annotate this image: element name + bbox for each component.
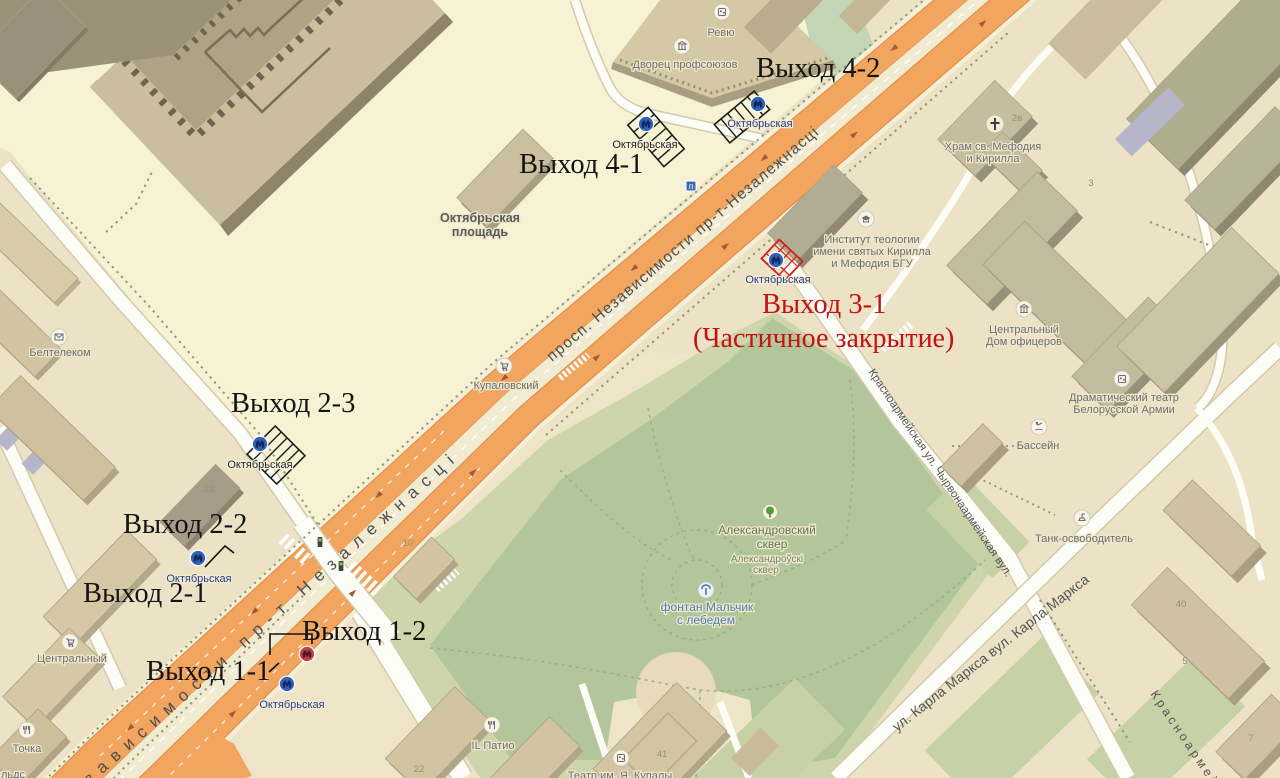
- svg-text:2в: 2в: [1012, 113, 1022, 124]
- svg-text:и Кирилла: и Кирилла: [967, 153, 1021, 165]
- svg-text:Драматический театр: Драматический театр: [1069, 392, 1179, 404]
- svg-text:Храм св. Мефодия: Храм св. Мефодия: [945, 141, 1042, 153]
- svg-text:Октябрьская: Октябрьская: [227, 459, 292, 471]
- svg-text:Ревю: Ревю: [707, 27, 734, 39]
- svg-text:Выход 2-3: Выход 2-3: [231, 388, 355, 419]
- svg-text:Октябрьская: Октябрьская: [440, 211, 520, 225]
- svg-text:Александровский: Александровский: [718, 523, 816, 537]
- svg-text:с лебедем: с лебедем: [677, 613, 735, 627]
- svg-text:льдс: льдс: [1, 769, 26, 778]
- svg-text:IL Патио: IL Патио: [472, 740, 515, 752]
- svg-text:Выход 4-2: Выход 4-2: [756, 53, 880, 84]
- svg-text:п: п: [689, 182, 693, 191]
- svg-text:Октябрьская: Октябрьская: [745, 274, 810, 286]
- svg-text:10: 10: [403, 538, 414, 549]
- svg-text:Театр им. Я. Купалы: Театр им. Я. Купалы: [568, 770, 673, 778]
- svg-text:40: 40: [1176, 599, 1187, 610]
- svg-text:Выход 2-2: Выход 2-2: [123, 509, 247, 540]
- svg-text:Купаловский: Купаловский: [474, 380, 539, 392]
- svg-text:Выход 4-1: Выход 4-1: [519, 149, 643, 180]
- svg-text:Выход 1-2: Выход 1-2: [302, 616, 426, 647]
- svg-text:Белорусской Армии: Белорусской Армии: [1073, 404, 1175, 416]
- svg-text:Бассейн: Бассейн: [1017, 440, 1060, 452]
- svg-text:7: 7: [1248, 733, 1253, 744]
- svg-text:Центральный: Центральный: [37, 653, 107, 665]
- svg-text:фонтан Мальчик: фонтан Мальчик: [661, 600, 754, 614]
- svg-text:41: 41: [657, 749, 668, 760]
- svg-text:Александроўскі: Александроўскі: [731, 553, 803, 565]
- svg-text:и Мефодия БГУ: и Мефодия БГУ: [831, 258, 913, 270]
- svg-text:имени святых Кирилла: имени святых Кирилла: [813, 246, 931, 258]
- svg-text:Выход 2-1: Выход 2-1: [83, 578, 207, 609]
- svg-text:5: 5: [1182, 656, 1187, 667]
- svg-text:Дом офицеров: Дом офицеров: [986, 336, 1062, 348]
- svg-text:Октябрьская: Октябрьская: [727, 118, 792, 130]
- svg-text:(Частичное закрытие): (Частичное закрытие): [693, 323, 954, 354]
- svg-text:Танк-освободитель: Танк-освободитель: [1035, 533, 1133, 545]
- svg-text:Выход 3-1: Выход 3-1: [762, 289, 886, 320]
- svg-text:3: 3: [1088, 178, 1093, 189]
- svg-text:Институт теологии: Институт теологии: [824, 234, 919, 246]
- svg-text:Центральный: Центральный: [989, 324, 1059, 336]
- svg-text:сквер: сквер: [757, 537, 788, 551]
- svg-text:23: 23: [204, 484, 215, 495]
- svg-text:Белтелеком: Белтелеком: [29, 347, 90, 359]
- svg-text:Октябрьская: Октябрьская: [259, 699, 324, 711]
- svg-text:22: 22: [414, 764, 425, 775]
- svg-text:Точка: Точка: [13, 743, 43, 755]
- svg-text:сквер: сквер: [753, 565, 779, 576]
- svg-text:площадь: площадь: [452, 225, 509, 239]
- svg-text:Дворец профсоюзов: Дворец профсоюзов: [633, 59, 738, 71]
- svg-text:Выход 1-1: Выход 1-1: [146, 656, 270, 687]
